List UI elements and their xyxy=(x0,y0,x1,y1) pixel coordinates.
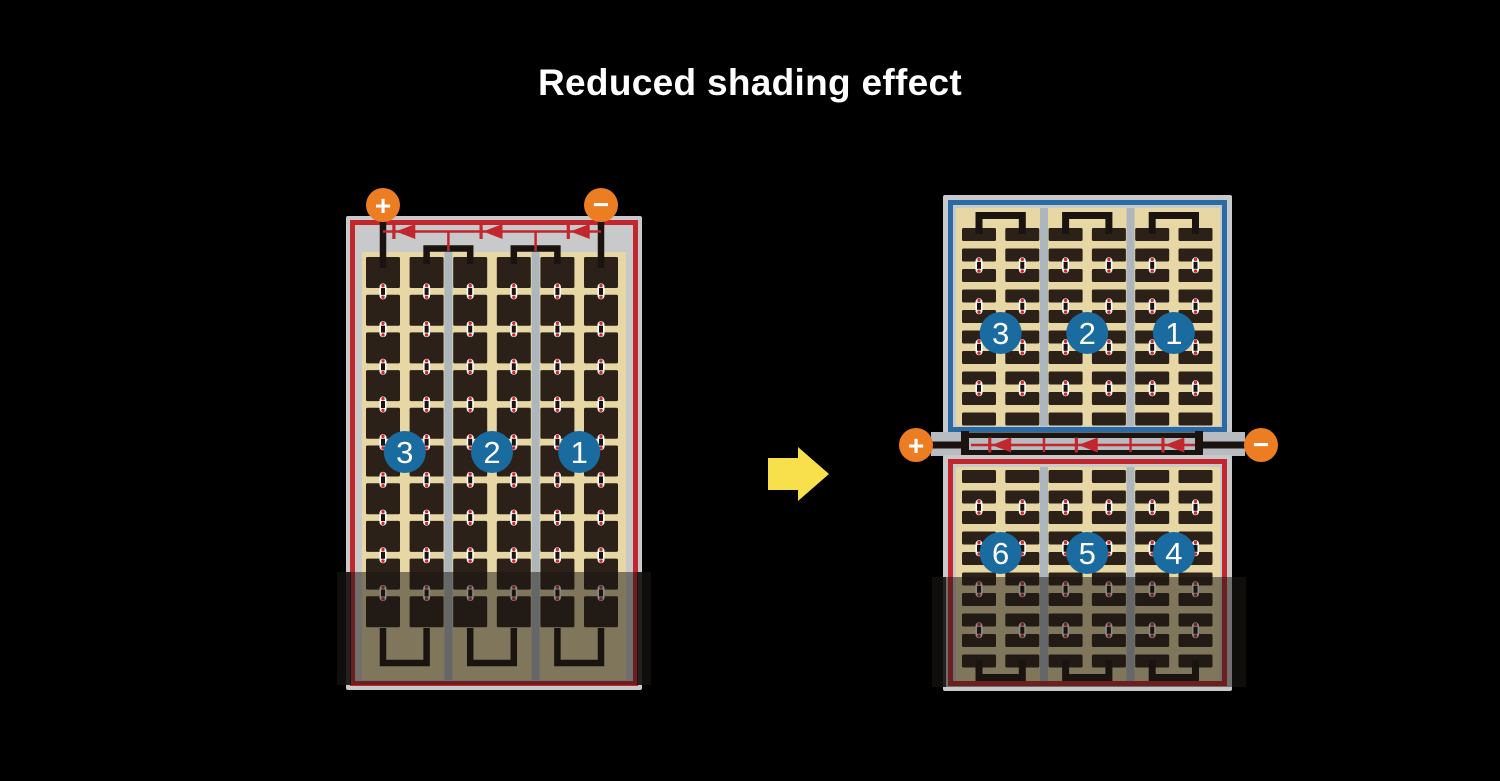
cell-connector-dot xyxy=(1194,392,1197,395)
cell-connector-dot xyxy=(1151,392,1154,395)
cell-connector-dot xyxy=(469,296,472,299)
cell-connector-dot xyxy=(599,510,602,513)
cell-connector-dot xyxy=(425,284,428,287)
cell-connector-dot xyxy=(1107,541,1110,544)
cell-connector-dot xyxy=(469,359,472,362)
cell-connector-dot xyxy=(599,359,602,362)
cell-connector-dot xyxy=(1151,258,1154,261)
cell-connector-dot xyxy=(1021,351,1024,354)
cell-connector-dot xyxy=(512,559,515,562)
cell-connector-core xyxy=(599,401,603,408)
shade-band-cap xyxy=(1232,577,1246,687)
cell-connector-dot xyxy=(1194,258,1197,261)
cell-connector-core xyxy=(599,326,603,333)
cell-connector-core xyxy=(425,326,429,333)
cell-connector-dot xyxy=(1064,299,1067,302)
cell-connector-core xyxy=(1064,262,1068,269)
cell-connector-core xyxy=(555,552,559,559)
cell-connector-core xyxy=(599,439,603,446)
cell-connector-dot xyxy=(977,381,980,384)
cell-connector-dot xyxy=(425,484,428,487)
cell-connector-core xyxy=(468,288,472,295)
cell-connector-dot xyxy=(1021,310,1024,313)
cell-connector-dot xyxy=(977,500,980,503)
cell-connector-dot xyxy=(556,397,559,400)
cell-connector-core xyxy=(555,514,559,521)
cell-connector-dot xyxy=(469,409,472,412)
right-bottom-module: 6 5 4 xyxy=(932,455,1246,691)
cell-connector-dot xyxy=(1151,269,1154,272)
cell-connector-dot xyxy=(977,541,980,544)
cell-connector-core xyxy=(1194,385,1198,392)
cell-connector-core xyxy=(468,363,472,370)
cell-connector-dot xyxy=(425,333,428,336)
string-number: 3 xyxy=(396,435,413,470)
cell-connector-core xyxy=(381,363,385,370)
cell-connector-dot xyxy=(1107,381,1110,384)
half-cut-cell xyxy=(1049,413,1083,426)
cell-connector-dot xyxy=(512,484,515,487)
cell-connector-dot xyxy=(599,522,602,525)
cell-connector-dot xyxy=(556,359,559,362)
shade-band-cap xyxy=(932,577,946,687)
cell-connector-dot xyxy=(977,299,980,302)
cell-connector-dot xyxy=(425,435,428,438)
cell-connector-core xyxy=(1194,303,1198,310)
cell-connector-dot xyxy=(556,559,559,562)
cell-connector-dot xyxy=(512,472,515,475)
half-cut-cell xyxy=(1092,470,1126,483)
half-cut-cell xyxy=(1005,413,1039,426)
cell-connector-dot xyxy=(1021,340,1024,343)
cell-connector-core xyxy=(1150,262,1154,269)
cell-connector-dot xyxy=(1021,299,1024,302)
cell-connector-core xyxy=(512,288,516,295)
cell-connector-dot xyxy=(425,522,428,525)
cell-connector-dot xyxy=(469,548,472,551)
cell-connector-dot xyxy=(512,359,515,362)
cell-connector-dot xyxy=(381,522,384,525)
cell-connector-dot xyxy=(512,510,515,513)
cell-connector-dot xyxy=(425,559,428,562)
diagram-canvas: 3 2 1 + − xyxy=(0,0,1500,781)
cell-connector-dot xyxy=(1194,381,1197,384)
cell-connector-dot xyxy=(556,409,559,412)
cell-connector-dot xyxy=(1064,500,1067,503)
cell-connector-dot xyxy=(425,472,428,475)
cell-connector-core xyxy=(381,476,385,483)
cell-connector-dot xyxy=(1064,258,1067,261)
cell-connector-dot xyxy=(1151,299,1154,302)
cell-connector-dot xyxy=(1021,511,1024,514)
half-cut-cell xyxy=(1179,470,1213,483)
cell-connector-dot xyxy=(1064,269,1067,272)
cell-connector-dot xyxy=(1064,392,1067,395)
half-cut-cell xyxy=(1135,413,1169,426)
cell-connector-core xyxy=(1020,262,1024,269)
cell-connector-dot xyxy=(469,333,472,336)
shade-band-cap xyxy=(337,572,351,685)
cell-connector-dot xyxy=(469,484,472,487)
cell-connector-dot xyxy=(469,522,472,525)
cell-connector-core xyxy=(381,326,385,333)
cell-connector-core xyxy=(555,401,559,408)
cell-connector-dot xyxy=(1194,351,1197,354)
cell-connector-dot xyxy=(1151,511,1154,514)
cell-connector-dot xyxy=(425,510,428,513)
junction-end-bar xyxy=(1195,431,1203,457)
string-separator xyxy=(1127,208,1135,426)
transform-arrow-icon xyxy=(768,447,829,501)
cell-connector-dot xyxy=(1107,258,1110,261)
cell-connector-dot xyxy=(425,409,428,412)
half-cut-cell xyxy=(1049,470,1083,483)
string-separator xyxy=(1040,208,1048,426)
cell-connector-core xyxy=(1020,303,1024,310)
cell-connector-core xyxy=(555,326,559,333)
cell-connector-core xyxy=(381,514,385,521)
cell-connector-dot xyxy=(977,392,980,395)
cell-connector-dot xyxy=(556,522,559,525)
half-cut-cell xyxy=(962,413,996,426)
cell-connector-dot xyxy=(381,472,384,475)
plus-icon: + xyxy=(375,190,391,221)
cell-connector-core xyxy=(381,401,385,408)
string-number: 2 xyxy=(1079,316,1096,351)
cell-connector-core xyxy=(512,401,516,408)
cell-connector-dot xyxy=(1151,500,1154,503)
cell-connector-dot xyxy=(1021,392,1024,395)
cell-connector-dot xyxy=(381,322,384,325)
cell-connector-dot xyxy=(599,435,602,438)
left-module: 3 2 1 + − xyxy=(337,188,651,690)
cell-connector-core xyxy=(1150,344,1154,351)
cell-connector-core xyxy=(512,552,516,559)
cell-connector-dot xyxy=(977,310,980,313)
cell-connector-core xyxy=(1064,504,1068,511)
cell-connector-core xyxy=(1064,344,1068,351)
cell-connector-dot xyxy=(425,371,428,374)
cell-connector-core xyxy=(381,288,385,295)
string-number: 3 xyxy=(992,316,1009,351)
cell-connector-dot xyxy=(599,409,602,412)
cell-connector-dot xyxy=(1021,381,1024,384)
cell-connector-dot xyxy=(556,510,559,513)
cell-connector-dot xyxy=(381,284,384,287)
cell-connector-dot xyxy=(512,322,515,325)
cell-connector-dot xyxy=(469,435,472,438)
cell-connector-core xyxy=(512,476,516,483)
cell-connector-core xyxy=(381,439,385,446)
cell-connector-dot xyxy=(425,359,428,362)
cell-connector-core xyxy=(468,552,472,559)
string-number: 1 xyxy=(571,435,588,470)
cell-connector-dot xyxy=(512,548,515,551)
cell-connector-dot xyxy=(1064,351,1067,354)
string-number: 6 xyxy=(992,536,1009,571)
cell-connector-dot xyxy=(381,397,384,400)
cell-connector-core xyxy=(468,476,472,483)
cell-connector-dot xyxy=(469,510,472,513)
cell-connector-core xyxy=(425,401,429,408)
cell-connector-dot xyxy=(1064,541,1067,544)
shade-band xyxy=(932,577,1246,687)
cell-connector-dot xyxy=(1107,299,1110,302)
cell-connector-dot xyxy=(469,322,472,325)
cell-connector-dot xyxy=(556,484,559,487)
cell-connector-core xyxy=(1020,344,1024,351)
cell-connector-dot xyxy=(1021,258,1024,261)
cell-connector-core xyxy=(1150,504,1154,511)
cell-connector-dot xyxy=(556,333,559,336)
cell-connector-dot xyxy=(512,435,515,438)
cell-connector-core xyxy=(599,288,603,295)
cell-connector-dot xyxy=(977,351,980,354)
cell-connector-dot xyxy=(381,371,384,374)
cell-connector-dot xyxy=(599,322,602,325)
cell-connector-dot xyxy=(512,397,515,400)
cell-connector-dot xyxy=(1194,541,1197,544)
cell-connector-core xyxy=(555,363,559,370)
cell-connector-core xyxy=(468,401,472,408)
cell-connector-dot xyxy=(1064,381,1067,384)
cell-connector-core xyxy=(1194,262,1198,269)
cell-connector-core xyxy=(425,288,429,295)
cell-connector-core xyxy=(1020,385,1024,392)
cell-connector-core xyxy=(599,514,603,521)
cell-connector-dot xyxy=(512,333,515,336)
string-number: 2 xyxy=(483,435,500,470)
cell-connector-core xyxy=(1194,344,1198,351)
cell-connector-dot xyxy=(599,559,602,562)
cell-connector-dot xyxy=(1194,511,1197,514)
cell-connector-dot xyxy=(556,322,559,325)
diagram-stage: Reduced shading effect xyxy=(0,0,1500,781)
cell-connector-core xyxy=(512,326,516,333)
cell-connector-dot xyxy=(556,296,559,299)
cell-connector-dot xyxy=(599,548,602,551)
cell-connector-dot xyxy=(381,548,384,551)
cell-connector-core xyxy=(977,385,981,392)
cell-connector-dot xyxy=(1107,511,1110,514)
cell-connector-core xyxy=(512,514,516,521)
cell-connector-core xyxy=(555,439,559,446)
cell-connector-dot xyxy=(381,484,384,487)
junction-bus-bar xyxy=(963,433,1201,439)
cell-connector-dot xyxy=(556,472,559,475)
cell-connector-dot xyxy=(1021,541,1024,544)
string-number: 4 xyxy=(1165,536,1182,571)
cell-connector-dot xyxy=(512,284,515,287)
cell-connector-dot xyxy=(599,333,602,336)
cell-connector-dot xyxy=(512,371,515,374)
cell-connector-dot xyxy=(599,472,602,475)
cell-connector-dot xyxy=(599,371,602,374)
cell-connector-core xyxy=(599,552,603,559)
cell-connector-dot xyxy=(1107,500,1110,503)
shade-band xyxy=(337,572,651,685)
cell-connector-dot xyxy=(512,296,515,299)
minus-icon: − xyxy=(1253,429,1269,460)
cell-connector-core xyxy=(512,439,516,446)
cell-connector-dot xyxy=(556,435,559,438)
cell-connector-dot xyxy=(1194,500,1197,503)
cell-connector-core xyxy=(425,363,429,370)
cell-connector-core xyxy=(977,262,981,269)
cell-connector-core xyxy=(425,439,429,446)
cell-connector-dot xyxy=(512,522,515,525)
right-top-module: 3 2 1 xyxy=(943,195,1232,433)
cell-connector-dot xyxy=(1107,392,1110,395)
cell-connector-core xyxy=(468,514,472,521)
cell-connector-dot xyxy=(1194,269,1197,272)
cell-connector-core xyxy=(1150,303,1154,310)
half-cut-cell xyxy=(1092,413,1126,426)
half-cut-cell xyxy=(962,470,996,483)
cell-connector-core xyxy=(468,439,472,446)
cell-connector-dot xyxy=(381,510,384,513)
cell-connector-dot xyxy=(381,333,384,336)
cell-connector-core xyxy=(1107,303,1111,310)
cell-connector-dot xyxy=(1151,340,1154,343)
cell-connector-dot xyxy=(425,397,428,400)
cell-connector-dot xyxy=(1194,299,1197,302)
cell-connector-dot xyxy=(469,284,472,287)
cell-connector-dot xyxy=(469,472,472,475)
cell-connector-core xyxy=(977,303,981,310)
cell-connector-dot xyxy=(599,284,602,287)
cell-connector-dot xyxy=(977,269,980,272)
cell-connector-core xyxy=(1107,504,1111,511)
cell-connector-dot xyxy=(1107,310,1110,313)
cell-connector-dot xyxy=(425,296,428,299)
cell-connector-core xyxy=(1064,303,1068,310)
cell-connector-dot xyxy=(1151,541,1154,544)
cell-connector-core xyxy=(425,476,429,483)
cell-connector-core xyxy=(1020,504,1024,511)
cell-connector-core xyxy=(1107,262,1111,269)
cell-connector-core xyxy=(599,476,603,483)
cell-connector-core xyxy=(468,326,472,333)
cell-connector-dot xyxy=(977,511,980,514)
cell-connector-core xyxy=(381,552,385,559)
cell-connector-core xyxy=(512,363,516,370)
cell-connector-dot xyxy=(469,371,472,374)
cell-connector-core xyxy=(555,288,559,295)
cell-connector-core xyxy=(425,514,429,521)
cell-connector-core xyxy=(1194,504,1198,511)
cell-connector-dot xyxy=(1064,511,1067,514)
cell-connector-dot xyxy=(977,258,980,261)
junction-bus-bar xyxy=(963,450,1201,456)
cell-connector-dot xyxy=(1064,310,1067,313)
cell-connector-dot xyxy=(556,371,559,374)
cell-connector-dot xyxy=(556,284,559,287)
cell-connector-dot xyxy=(977,340,980,343)
cell-connector-core xyxy=(1107,385,1111,392)
half-cut-cell xyxy=(1179,413,1213,426)
half-cut-cell xyxy=(1135,470,1169,483)
cell-connector-dot xyxy=(381,435,384,438)
cell-connector-dot xyxy=(1194,310,1197,313)
cell-connector-dot xyxy=(1064,340,1067,343)
cell-connector-dot xyxy=(599,484,602,487)
cell-connector-core xyxy=(1064,385,1068,392)
cell-connector-dot xyxy=(1021,269,1024,272)
cell-connector-core xyxy=(1107,344,1111,351)
cell-connector-dot xyxy=(469,397,472,400)
cell-connector-core xyxy=(425,552,429,559)
cell-connector-dot xyxy=(425,548,428,551)
cell-connector-dot xyxy=(1021,500,1024,503)
cell-connector-dot xyxy=(1107,340,1110,343)
cell-connector-core xyxy=(555,476,559,483)
string-number: 5 xyxy=(1079,536,1096,571)
cell-connector-dot xyxy=(512,409,515,412)
half-cut-cell xyxy=(1005,470,1039,483)
cell-connector-dot xyxy=(1151,351,1154,354)
cell-connector-dot xyxy=(381,559,384,562)
cell-connector-dot xyxy=(1151,310,1154,313)
cell-connector-dot xyxy=(599,296,602,299)
minus-icon: − xyxy=(593,189,609,220)
cell-connector-dot xyxy=(381,296,384,299)
cell-connector-dot xyxy=(599,397,602,400)
cell-connector-dot xyxy=(381,359,384,362)
cell-connector-dot xyxy=(469,559,472,562)
cell-connector-core xyxy=(1150,385,1154,392)
shade-band-cap xyxy=(637,572,651,685)
cell-connector-core xyxy=(977,504,981,511)
cell-connector-core xyxy=(977,344,981,351)
cell-connector-dot xyxy=(1107,269,1110,272)
cell-connector-dot xyxy=(381,409,384,412)
cell-connector-dot xyxy=(1107,351,1110,354)
cell-connector-dot xyxy=(556,548,559,551)
plus-icon: + xyxy=(908,430,924,461)
string-number: 1 xyxy=(1165,316,1182,351)
cell-connector-dot xyxy=(1194,340,1197,343)
cell-connector-dot xyxy=(1151,381,1154,384)
cell-connector-dot xyxy=(425,322,428,325)
cell-connector-core xyxy=(599,363,603,370)
